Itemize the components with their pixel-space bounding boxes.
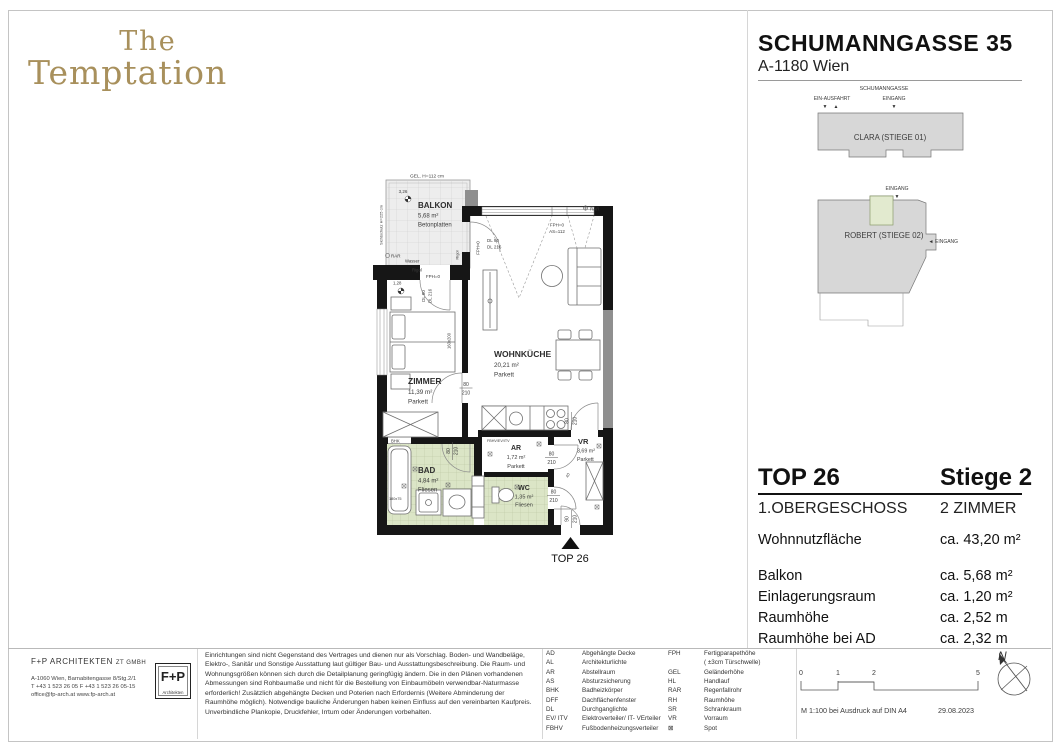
svg-text:Fliesen: Fliesen	[515, 503, 533, 509]
arrow-down-icon: ▼	[895, 194, 900, 200]
arrow-left-icon: ◄	[929, 239, 934, 245]
info-row-value: ca. 1,20 m²	[940, 589, 1013, 605]
fph-note: FPH=0	[426, 274, 441, 279]
legend-row: RHRaumhöhe	[668, 696, 794, 705]
entrance-arrow-icon	[562, 537, 580, 549]
svg-text:1,35 m²: 1,35 m²	[515, 495, 534, 501]
arrow-up-icon: ▲	[834, 104, 839, 110]
tub-size: 180x75	[389, 497, 401, 501]
architect-logo: F+P Architekten	[155, 663, 191, 699]
info-row-label: Wohnnutzfläche	[758, 532, 862, 548]
building-clara-label: CLARA (STIEGE 01)	[854, 133, 927, 142]
svg-text:WOHNKÜCHE: WOHNKÜCHE	[494, 349, 551, 359]
svg-text:ZIMMER: ZIMMER	[408, 376, 442, 386]
svg-text:BAD: BAD	[418, 466, 436, 475]
legend-row: SRSchrankraum	[668, 705, 794, 714]
footer-divider-1	[197, 649, 198, 739]
legend-row: RARRegenfallrohr	[668, 686, 794, 695]
architect-phone: T +43 1 523 26 05 F +43 1 523 26 05-15	[31, 684, 135, 690]
architect-address: A-1060 Wien, Barnabitengasse 8/Stg.2/1	[31, 676, 136, 682]
legend-row: FBHVFußbodenheizungsverteiler	[546, 724, 668, 733]
svg-text:80: 80	[463, 382, 469, 388]
entrance-label: EINGANG	[882, 96, 905, 102]
entrance-side-label: EINGANG	[935, 239, 958, 245]
staircase-label: Stiege 2	[940, 464, 1032, 492]
site-plan: SCHUMANNGASSE EIN-AUSFAHRT ▼ ▲ EINGANG ▼…	[790, 85, 1056, 330]
svg-text:AR: AR	[511, 445, 521, 452]
dim-326: 3,26	[399, 189, 408, 194]
washing-machine	[416, 490, 441, 515]
legend-row: DLDurchganglichte	[546, 705, 668, 714]
rigol-note: Rigol	[412, 268, 422, 273]
dining-set	[556, 330, 600, 380]
architect-name: F+P ARCHITEKTEN ZT GMBH	[31, 657, 146, 666]
svg-text:1: 1	[836, 670, 840, 677]
svg-text:VR: VR	[578, 437, 589, 446]
svg-text:210: 210	[573, 515, 579, 524]
svg-text:40: 40	[564, 472, 571, 479]
site-outline	[820, 293, 903, 326]
info-row-label: Einlagerungsraum	[758, 589, 876, 605]
legend-column-1: ADAbgehängte Decke ALArchitekturlichte A…	[546, 649, 668, 733]
svg-text:3,69 m²: 3,69 m²	[577, 449, 595, 455]
svg-text:2: 2	[872, 670, 876, 677]
exit-label: EIN-AUSFAHRT	[814, 96, 851, 102]
svg-text:WC: WC	[518, 485, 530, 492]
arrow-down-icon: ▼	[892, 104, 897, 110]
column-divider	[747, 10, 748, 648]
legend-column-2: FPHFertigparapethöhe ( ±3cm Türschwelle)…	[668, 649, 794, 733]
scale-bar: 0 1 2 5	[799, 670, 980, 690]
svg-text:11,39 m²: 11,39 m²	[408, 389, 432, 396]
rar-note: RAR	[391, 254, 401, 259]
legend-row: DFFDachflächenfenster	[546, 696, 668, 705]
svg-text:5,68 m²: 5,68 m²	[418, 214, 438, 220]
svg-text:210: 210	[549, 498, 558, 504]
bhk-note: BHK	[391, 439, 400, 444]
svg-text:20,21 m²: 20,21 m²	[494, 362, 519, 369]
pillow	[392, 315, 405, 339]
building-robert: ROBERT (STIEGE 02)	[818, 196, 936, 326]
floor-plan: 80 210 80 210 80 210 80 210 80 210 90 21…	[320, 160, 740, 580]
scale-and-north: 0 1 2 5 M 1:100 bei Ausdruck auf DIN A4 …	[796, 649, 1052, 737]
svg-text:4,84 m²: 4,84 m²	[418, 479, 438, 485]
svg-text:Parkett: Parkett	[577, 457, 594, 463]
gel-note: GEL. H=112 cm	[410, 174, 444, 180]
plan-sheet: The Temptation SCHUMANNGASSE 35 A-1180 W…	[0, 0, 1060, 749]
legend-row: VRVorraum	[668, 714, 794, 723]
pillow	[392, 345, 405, 369]
project-title: SCHUMANNGASSE 35	[758, 30, 1013, 57]
toilet	[492, 487, 514, 503]
info-row-value: ca. 2,52 m	[940, 610, 1008, 626]
info-row-value: ca. 2,32 m	[940, 631, 1008, 647]
floor-level: 1.OBERGESCHOSS	[758, 500, 907, 518]
round-table	[542, 266, 563, 287]
fph-note: FPH=0	[550, 223, 565, 228]
svg-text:Fliesen: Fliesen	[418, 488, 437, 494]
header-rule	[758, 80, 1022, 81]
plan-date: 29.08.2023	[938, 706, 974, 715]
svg-text:Betonplatten: Betonplatten	[418, 223, 452, 229]
svg-text:80: 80	[446, 448, 452, 454]
svg-text:5: 5	[976, 670, 980, 677]
sofa	[568, 248, 601, 305]
legend-row: EV/ ITVElektroverteiler/ IT- VErteiler	[546, 714, 668, 723]
vr-wardrobe	[586, 462, 603, 500]
dim-128: 1,28	[393, 281, 402, 286]
street-label: SCHUMANNGASSE	[860, 86, 909, 92]
svg-text:Parkett: Parkett	[507, 464, 525, 470]
legend-row: ARAbstellraum	[546, 668, 668, 677]
building-robert-label: ROBERT (STIEGE 02)	[844, 231, 923, 240]
svg-text:1,72 m²: 1,72 m²	[507, 455, 526, 461]
legend-row: BHKBadheizkörper	[546, 686, 668, 695]
info-row-value: ca. 43,20 m²	[940, 532, 1021, 548]
svg-text:80: 80	[549, 452, 555, 458]
dl80-note: DL 80	[421, 290, 426, 302]
svg-text:Parkett: Parkett	[408, 399, 428, 406]
entrance-robert-label: EINGANG	[885, 186, 908, 192]
dl90-note: DL 90	[487, 238, 499, 243]
unit-number: TOP 26	[758, 464, 840, 492]
fbhv-note: FBHV/EV/ITV	[487, 439, 510, 443]
brand-logo-line2: Temptation	[28, 56, 213, 89]
room-label-bad: BAD 4,84 m² Fliesen	[418, 466, 438, 494]
legend-row: ⊠Spot	[668, 724, 794, 733]
scale-note: M 1:100 bei Ausdruck auf DIN A4	[801, 706, 907, 715]
svg-text:0: 0	[799, 670, 803, 677]
info-row-label: Balkon	[758, 568, 802, 584]
screen-note: Sichtschutz H=225 cm	[379, 204, 384, 245]
arrow-down-icon: ▼	[823, 104, 828, 110]
room-count: 2 ZIMMER	[940, 500, 1016, 518]
building-clara: CLARA (STIEGE 01)	[818, 113, 963, 157]
info-row-value: ca. 5,68 m²	[940, 568, 1013, 584]
svg-text:210: 210	[547, 460, 556, 466]
svg-text:210: 210	[462, 391, 471, 397]
room-label-vr: VR 3,69 m² Parkett	[577, 437, 595, 463]
svg-text:210: 210	[454, 447, 460, 456]
legend-row: ADAbgehängte Decke	[546, 649, 668, 658]
wasser-note: Wasser	[405, 259, 420, 264]
room-label-zimmer: ZIMMER 11,39 m² Parkett	[408, 376, 442, 406]
info-row-label: Raumhöhe	[758, 610, 829, 626]
duct-fixture	[472, 476, 484, 518]
legend-row: HLHandlauf	[668, 677, 794, 686]
highlighted-unit	[870, 196, 893, 225]
rar-note: RAR	[590, 207, 600, 212]
nightstand	[391, 297, 411, 310]
washbasin	[443, 489, 471, 516]
north-arrow-icon: N	[998, 649, 1030, 695]
legend-row: ALArchitekturlichte	[546, 658, 668, 667]
wardrobe	[383, 412, 438, 437]
bathtub	[388, 446, 411, 514]
info-row-label: Raumhöhe bei AD	[758, 631, 876, 647]
dl216-note: DL 216	[487, 245, 502, 250]
legend-row: ASAbsturzsicherung	[546, 677, 668, 686]
svg-text:80: 80	[565, 418, 571, 424]
project-address: A-1180 Wien	[758, 58, 849, 76]
svg-text:Parkett: Parkett	[494, 372, 514, 379]
spot-icon: ⊠	[668, 724, 704, 733]
unit-entrance-label: TOP 26	[551, 553, 589, 565]
room-label-ar: AR 1,72 m² Parkett	[507, 445, 526, 470]
kitchen-counter	[482, 406, 568, 430]
footer-divider-2	[542, 649, 543, 739]
svg-text:BALKON: BALKON	[418, 201, 452, 210]
svg-text:80: 80	[551, 490, 557, 496]
fph-note: FPH=0	[476, 241, 481, 255]
bed-size: 160x200	[447, 332, 452, 349]
as-note: AS=112	[549, 229, 565, 234]
disclaimer-text: Einrichtungen sind nicht Gegenstand des …	[205, 651, 539, 717]
rigol-note: Rigol	[455, 250, 460, 259]
brand-logo-line1: The	[88, 28, 208, 55]
svg-text:N: N	[998, 649, 1007, 663]
svg-text:210: 210	[573, 417, 579, 426]
svg-text:90: 90	[565, 516, 571, 522]
legend-row: FPHFertigparapethöhe ( ±3cm Türschwelle)	[668, 649, 794, 668]
architect-web: office@fp-arch.at www.fp-arch.at	[31, 692, 115, 698]
room-label-wohnkueche: WOHNKÜCHE 20,21 m² Parkett	[494, 349, 551, 379]
legend-row: GELGeländerhöhe	[668, 668, 794, 677]
dl216-note: DL 216	[428, 288, 433, 303]
info-panel-rule	[758, 493, 1022, 495]
